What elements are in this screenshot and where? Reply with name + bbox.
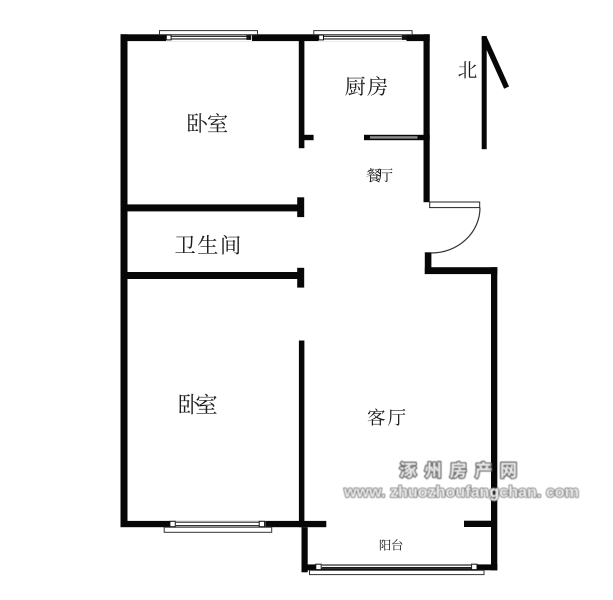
svg-text:www. zhuozhoufangchan. com: www. zhuozhoufangchan. com: [343, 484, 579, 501]
